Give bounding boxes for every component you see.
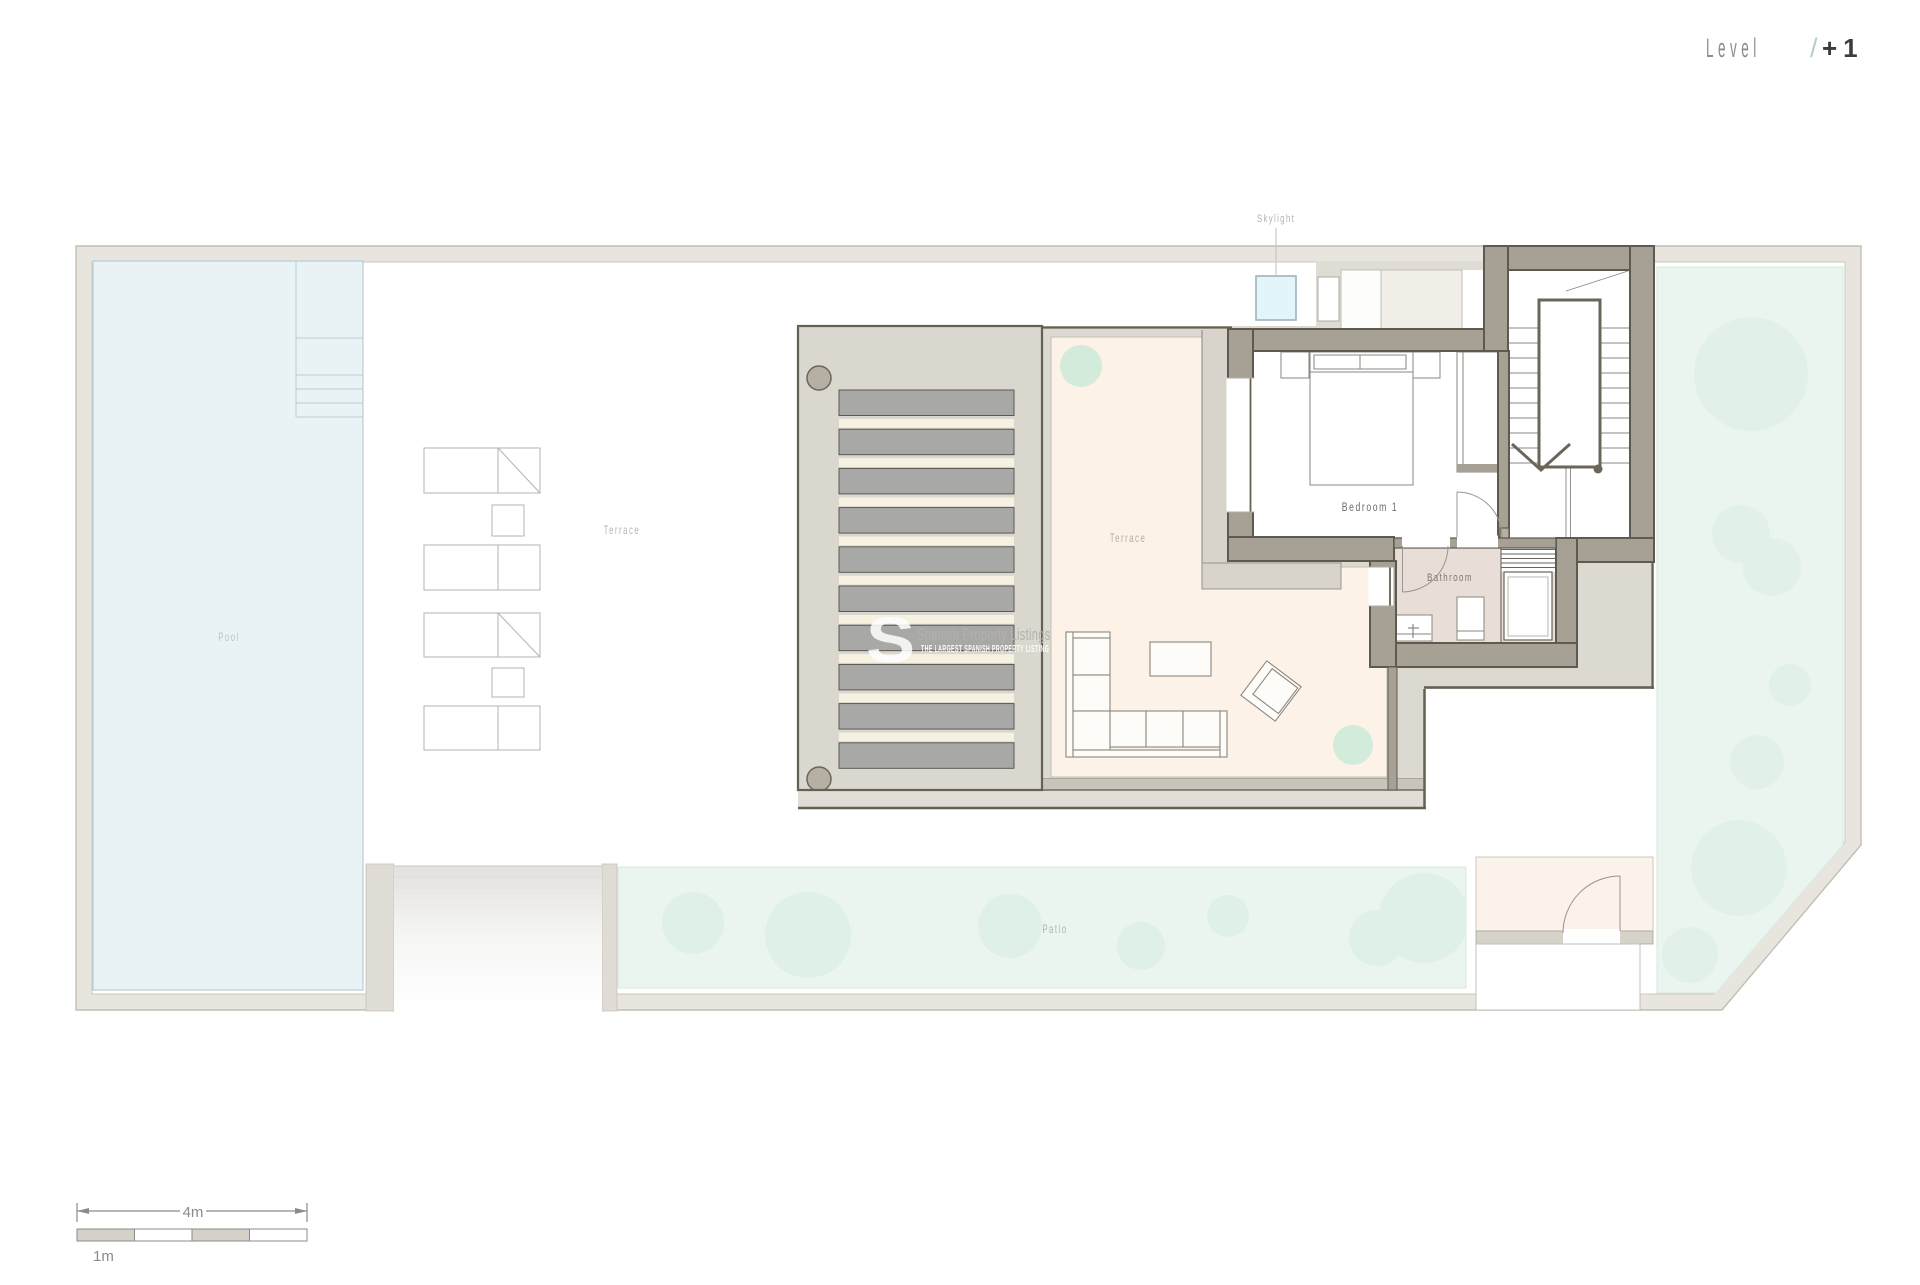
svg-text:THE LARGEST SPANISH PROPERTY L: THE LARGEST SPANISH PROPERTY LISTING (921, 643, 1049, 654)
svg-text:+1: +1 (1822, 33, 1864, 63)
svg-text:Level: Level (1706, 33, 1761, 63)
svg-text:Patio: Patio (1042, 924, 1067, 937)
svg-text:1m: 1m (93, 1248, 114, 1265)
svg-text:Bathroom: Bathroom (1427, 572, 1473, 585)
svg-text:Terrace: Terrace (1110, 533, 1147, 546)
svg-text:Pool: Pool (218, 632, 240, 645)
svg-text:Terrace: Terrace (604, 525, 641, 538)
svg-text:/: / (1810, 33, 1818, 63)
svg-text:Bedroom 1: Bedroom 1 (1342, 502, 1398, 515)
svg-text:4m: 4m (183, 1204, 204, 1221)
svg-text:S: S (866, 604, 915, 675)
svg-text:Spanish Property Listings: Spanish Property Listings (917, 625, 1051, 644)
svg-text:Skylight: Skylight (1257, 213, 1295, 226)
